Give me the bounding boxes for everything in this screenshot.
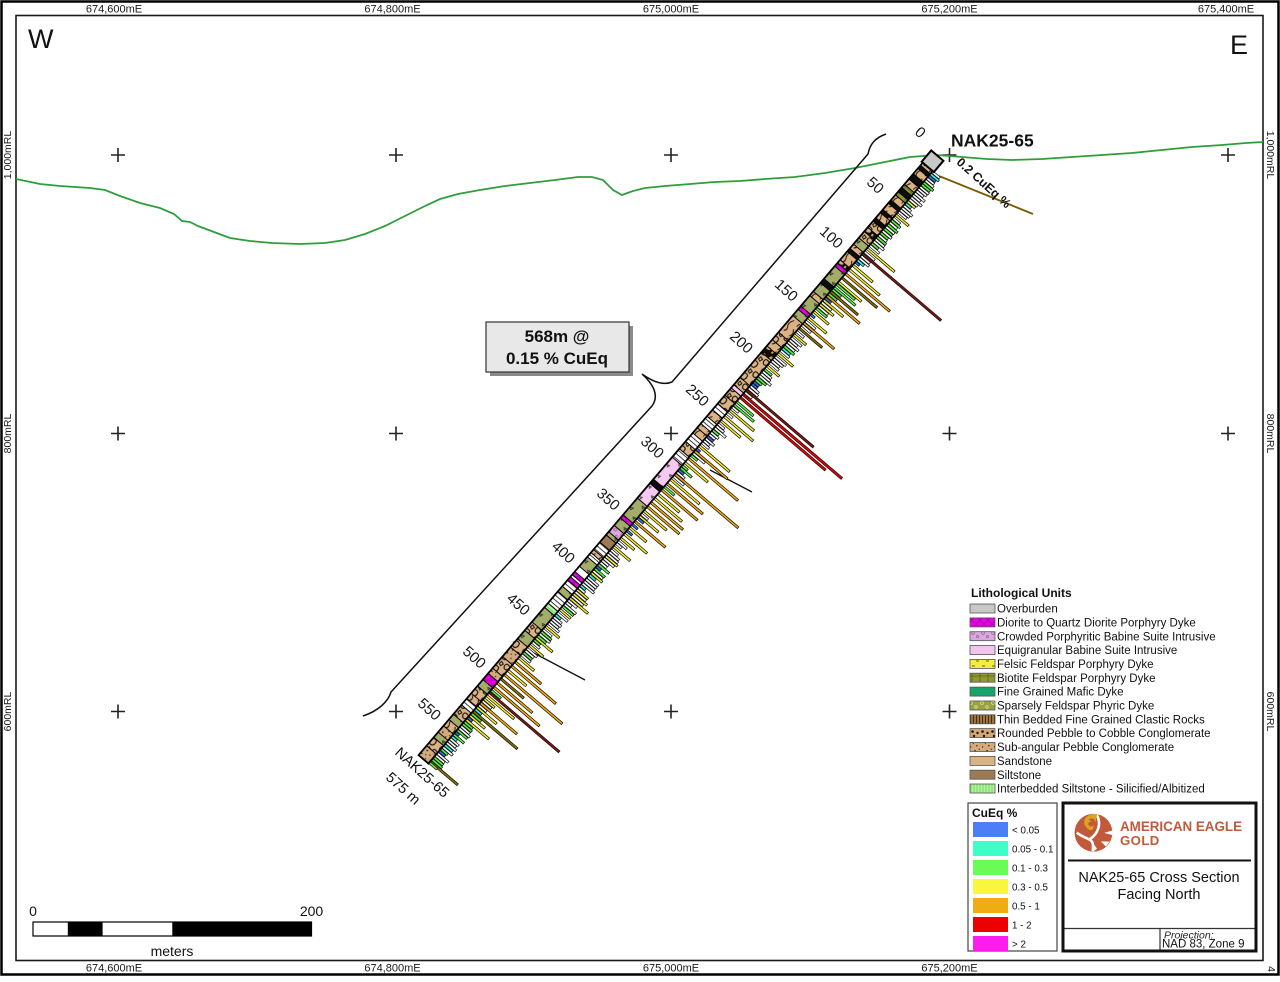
svg-text:Diorite to Quartz Diorite Porp: Diorite to Quartz Diorite Porphyry Dyke: [997, 618, 1196, 630]
svg-text:E: E: [1230, 30, 1248, 60]
svg-text:AMERICAN EAGLE: AMERICAN EAGLE: [1120, 819, 1242, 834]
svg-text:675,000mE: 675,000mE: [643, 963, 699, 975]
svg-text:Biotite Feldspar Porphyry Dyke: Biotite Feldspar Porphyry Dyke: [997, 673, 1156, 685]
svg-text:0.5 - 1: 0.5 - 1: [1012, 902, 1040, 913]
svg-text:Sparsely Feldspar Phyric Dyke: Sparsely Feldspar Phyric Dyke: [997, 701, 1154, 713]
svg-text:675,200mE: 675,200mE: [921, 4, 977, 16]
svg-text:800mRL: 800mRL: [1264, 414, 1276, 454]
svg-text:0.1 - 0.3: 0.1 - 0.3: [1012, 864, 1048, 875]
svg-text:< 0.05: < 0.05: [1012, 826, 1040, 837]
svg-text:674,800mE: 674,800mE: [364, 963, 420, 975]
svg-text:W: W: [28, 24, 54, 54]
svg-text:600mRL: 600mRL: [2, 692, 14, 732]
svg-text:Interbedded Siltstone - Silici: Interbedded Siltstone - Silicified/Albit…: [997, 784, 1205, 796]
svg-text:674,600mE: 674,600mE: [86, 4, 142, 16]
svg-text:0: 0: [29, 903, 37, 919]
svg-text:675,000mE: 675,000mE: [643, 4, 699, 16]
svg-text:Lithological Units: Lithological Units: [971, 586, 1072, 600]
svg-text:1 - 2: 1 - 2: [1012, 921, 1032, 932]
svg-text:Sub-angular Pebble Conglomerat: Sub-angular Pebble Conglomerate: [997, 742, 1174, 754]
svg-text:Facing North: Facing North: [1117, 887, 1200, 903]
svg-text:GOLD: GOLD: [1120, 833, 1160, 848]
svg-text:Thin Bedded Fine Grained Clast: Thin Bedded Fine Grained Clastic Rocks: [997, 714, 1205, 726]
svg-text:Crowded Porphyritic Babine Sui: Crowded Porphyritic Babine Suite Intrusi…: [997, 631, 1216, 643]
svg-text:600mRL: 600mRL: [1264, 692, 1276, 732]
svg-text:800mRL: 800mRL: [2, 414, 14, 454]
svg-text:NAK25-65 Cross Section: NAK25-65 Cross Section: [1078, 870, 1239, 886]
svg-text:meters: meters: [151, 943, 194, 959]
svg-text:NAD 83, Zone 9: NAD 83, Zone 9: [1162, 939, 1244, 951]
svg-text:Rounded Pebble to Cobble Congl: Rounded Pebble to Cobble Conglomerate: [997, 728, 1211, 740]
svg-text:Equigranular Babine Suite Intr: Equigranular Babine Suite Intrusive: [997, 645, 1177, 657]
svg-text:674,600mE: 674,600mE: [86, 963, 142, 975]
svg-text:0.3 - 0.5: 0.3 - 0.5: [1012, 883, 1048, 894]
svg-text:200: 200: [300, 903, 324, 919]
svg-text:674,800mE: 674,800mE: [364, 4, 420, 16]
svg-text:4: 4: [1265, 966, 1277, 972]
svg-text:675,200mE: 675,200mE: [921, 963, 977, 975]
svg-text:Siltstone: Siltstone: [997, 770, 1041, 782]
svg-text:1,000mRL: 1,000mRL: [2, 131, 14, 180]
svg-text:1,000mRL: 1,000mRL: [1264, 131, 1276, 180]
svg-text:Sandstone: Sandstone: [997, 756, 1052, 768]
svg-text:Fine Grained Mafic Dyke: Fine Grained Mafic Dyke: [997, 687, 1124, 699]
svg-text:568m @: 568m @: [525, 327, 590, 346]
svg-text:NAK25-65: NAK25-65: [951, 131, 1034, 151]
svg-text:0.05 - 0.1: 0.05 - 0.1: [1012, 845, 1053, 856]
svg-text:Felsic Feldspar Porphyry Dyke: Felsic Feldspar Porphyry Dyke: [997, 659, 1154, 671]
svg-text:> 2: > 2: [1012, 940, 1026, 951]
svg-text:CuEq %: CuEq %: [972, 806, 1018, 820]
svg-text:Overburden: Overburden: [997, 604, 1058, 616]
svg-text:675,400mE: 675,400mE: [1198, 4, 1254, 16]
svg-text:0.15 % CuEq: 0.15 % CuEq: [506, 349, 608, 368]
